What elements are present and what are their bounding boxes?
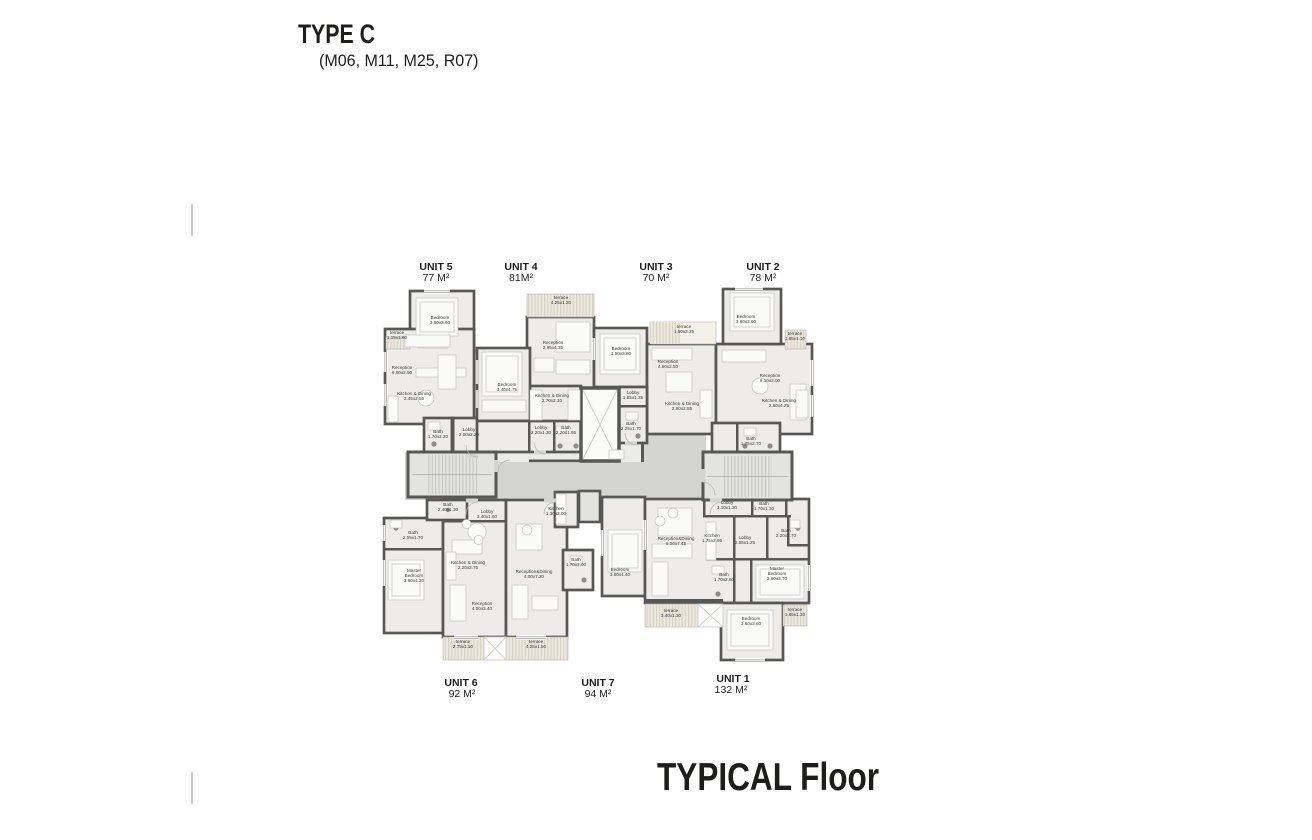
svg-text:3.60x3.60: 3.60x3.60 bbox=[741, 621, 762, 626]
svg-text:2.75x1.50: 2.75x1.50 bbox=[453, 644, 474, 649]
svg-text:3.60x4.40: 3.60x4.40 bbox=[610, 572, 631, 577]
svg-text:2.55x1.70: 2.55x1.70 bbox=[403, 535, 424, 540]
svg-text:1.65x1.30: 1.65x1.30 bbox=[785, 612, 806, 617]
svg-text:3.60x3.60: 3.60x3.60 bbox=[736, 319, 757, 324]
svg-text:3.60x3.60: 3.60x3.60 bbox=[430, 320, 451, 325]
svg-text:3.95x4.35: 3.95x4.35 bbox=[543, 345, 564, 350]
svg-text:3.45x2.55: 3.45x2.55 bbox=[404, 396, 425, 401]
svg-text:1.50x3.25: 1.50x3.25 bbox=[674, 329, 695, 334]
svg-text:4.25x1.30: 4.25x1.30 bbox=[551, 300, 572, 305]
svg-text:4.00x7.20: 4.00x7.20 bbox=[524, 574, 545, 579]
svg-text:6.00x2.90: 6.00x2.90 bbox=[392, 370, 413, 375]
svg-text:81M²: 81M² bbox=[509, 272, 533, 284]
svg-text:2.20x1.65: 2.20x1.65 bbox=[556, 430, 577, 435]
svg-text:1.65x1.10: 1.65x1.10 bbox=[785, 336, 806, 341]
svg-text:3.60x4.20: 3.60x4.20 bbox=[404, 578, 425, 583]
svg-text:3.40x1.60: 3.40x1.60 bbox=[477, 514, 498, 519]
svg-text:1.75x2.70: 1.75x2.70 bbox=[741, 441, 762, 446]
svg-text:1.70x2.20: 1.70x2.20 bbox=[428, 434, 449, 439]
svg-text:3.60x3.70: 3.60x3.70 bbox=[767, 576, 788, 581]
svg-text:1.30x3.00: 1.30x3.00 bbox=[546, 511, 567, 516]
svg-text:92 M²: 92 M² bbox=[449, 688, 476, 700]
svg-text:2.70x2.10: 2.70x2.10 bbox=[542, 398, 563, 403]
svg-text:6.00x7.45: 6.00x7.45 bbox=[666, 541, 687, 546]
svg-text:2.20x2.75: 2.20x2.75 bbox=[458, 565, 479, 570]
svg-text:3.50x3.80: 3.50x3.80 bbox=[611, 351, 632, 356]
svg-text:2.25x1.70: 2.25x1.70 bbox=[621, 426, 642, 431]
svg-text:1.85x1.35: 1.85x1.35 bbox=[623, 395, 644, 400]
svg-text:70 M²: 70 M² bbox=[643, 272, 670, 284]
svg-text:3.40x4.75: 3.40x4.75 bbox=[497, 387, 518, 392]
svg-text:1.75x2.85: 1.75x2.85 bbox=[702, 538, 723, 543]
svg-text:4.60x2.50: 4.60x2.50 bbox=[658, 364, 679, 369]
svg-text:2.40x1.30: 2.40x1.30 bbox=[438, 507, 459, 512]
svg-text:94 M²: 94 M² bbox=[585, 688, 612, 700]
svg-text:2.20x1.30: 2.20x1.30 bbox=[531, 430, 552, 435]
svg-text:1.70x1.30: 1.70x1.30 bbox=[754, 506, 775, 511]
svg-text:1.70x2.60: 1.70x2.60 bbox=[714, 577, 735, 582]
svg-text:2.20x1.70: 2.20x1.70 bbox=[776, 533, 797, 538]
svg-text:2.90x2.85: 2.90x2.85 bbox=[672, 406, 693, 411]
svg-text:4.25x1.50: 4.25x1.50 bbox=[526, 644, 547, 649]
svg-text:3.10x1.30: 3.10x1.30 bbox=[717, 505, 738, 510]
svg-text:77 M²: 77 M² bbox=[423, 272, 450, 284]
svg-text:2.85x1.25: 2.85x1.25 bbox=[735, 540, 756, 545]
svg-text:4.00x3.40: 4.00x3.40 bbox=[472, 606, 493, 611]
svg-text:132 M²: 132 M² bbox=[715, 684, 748, 696]
svg-text:6.10x3.00: 6.10x3.00 bbox=[760, 378, 781, 383]
svg-text:2.00x2.20: 2.00x2.20 bbox=[459, 432, 480, 437]
svg-text:78 M²: 78 M² bbox=[750, 272, 777, 284]
svg-text:1.70x2.00: 1.70x2.00 bbox=[566, 562, 587, 567]
svg-text:1.15x1.60: 1.15x1.60 bbox=[387, 335, 408, 340]
svg-text:3.40x1.30: 3.40x1.30 bbox=[661, 613, 682, 618]
svg-text:2.60x4.25: 2.60x4.25 bbox=[769, 403, 790, 408]
